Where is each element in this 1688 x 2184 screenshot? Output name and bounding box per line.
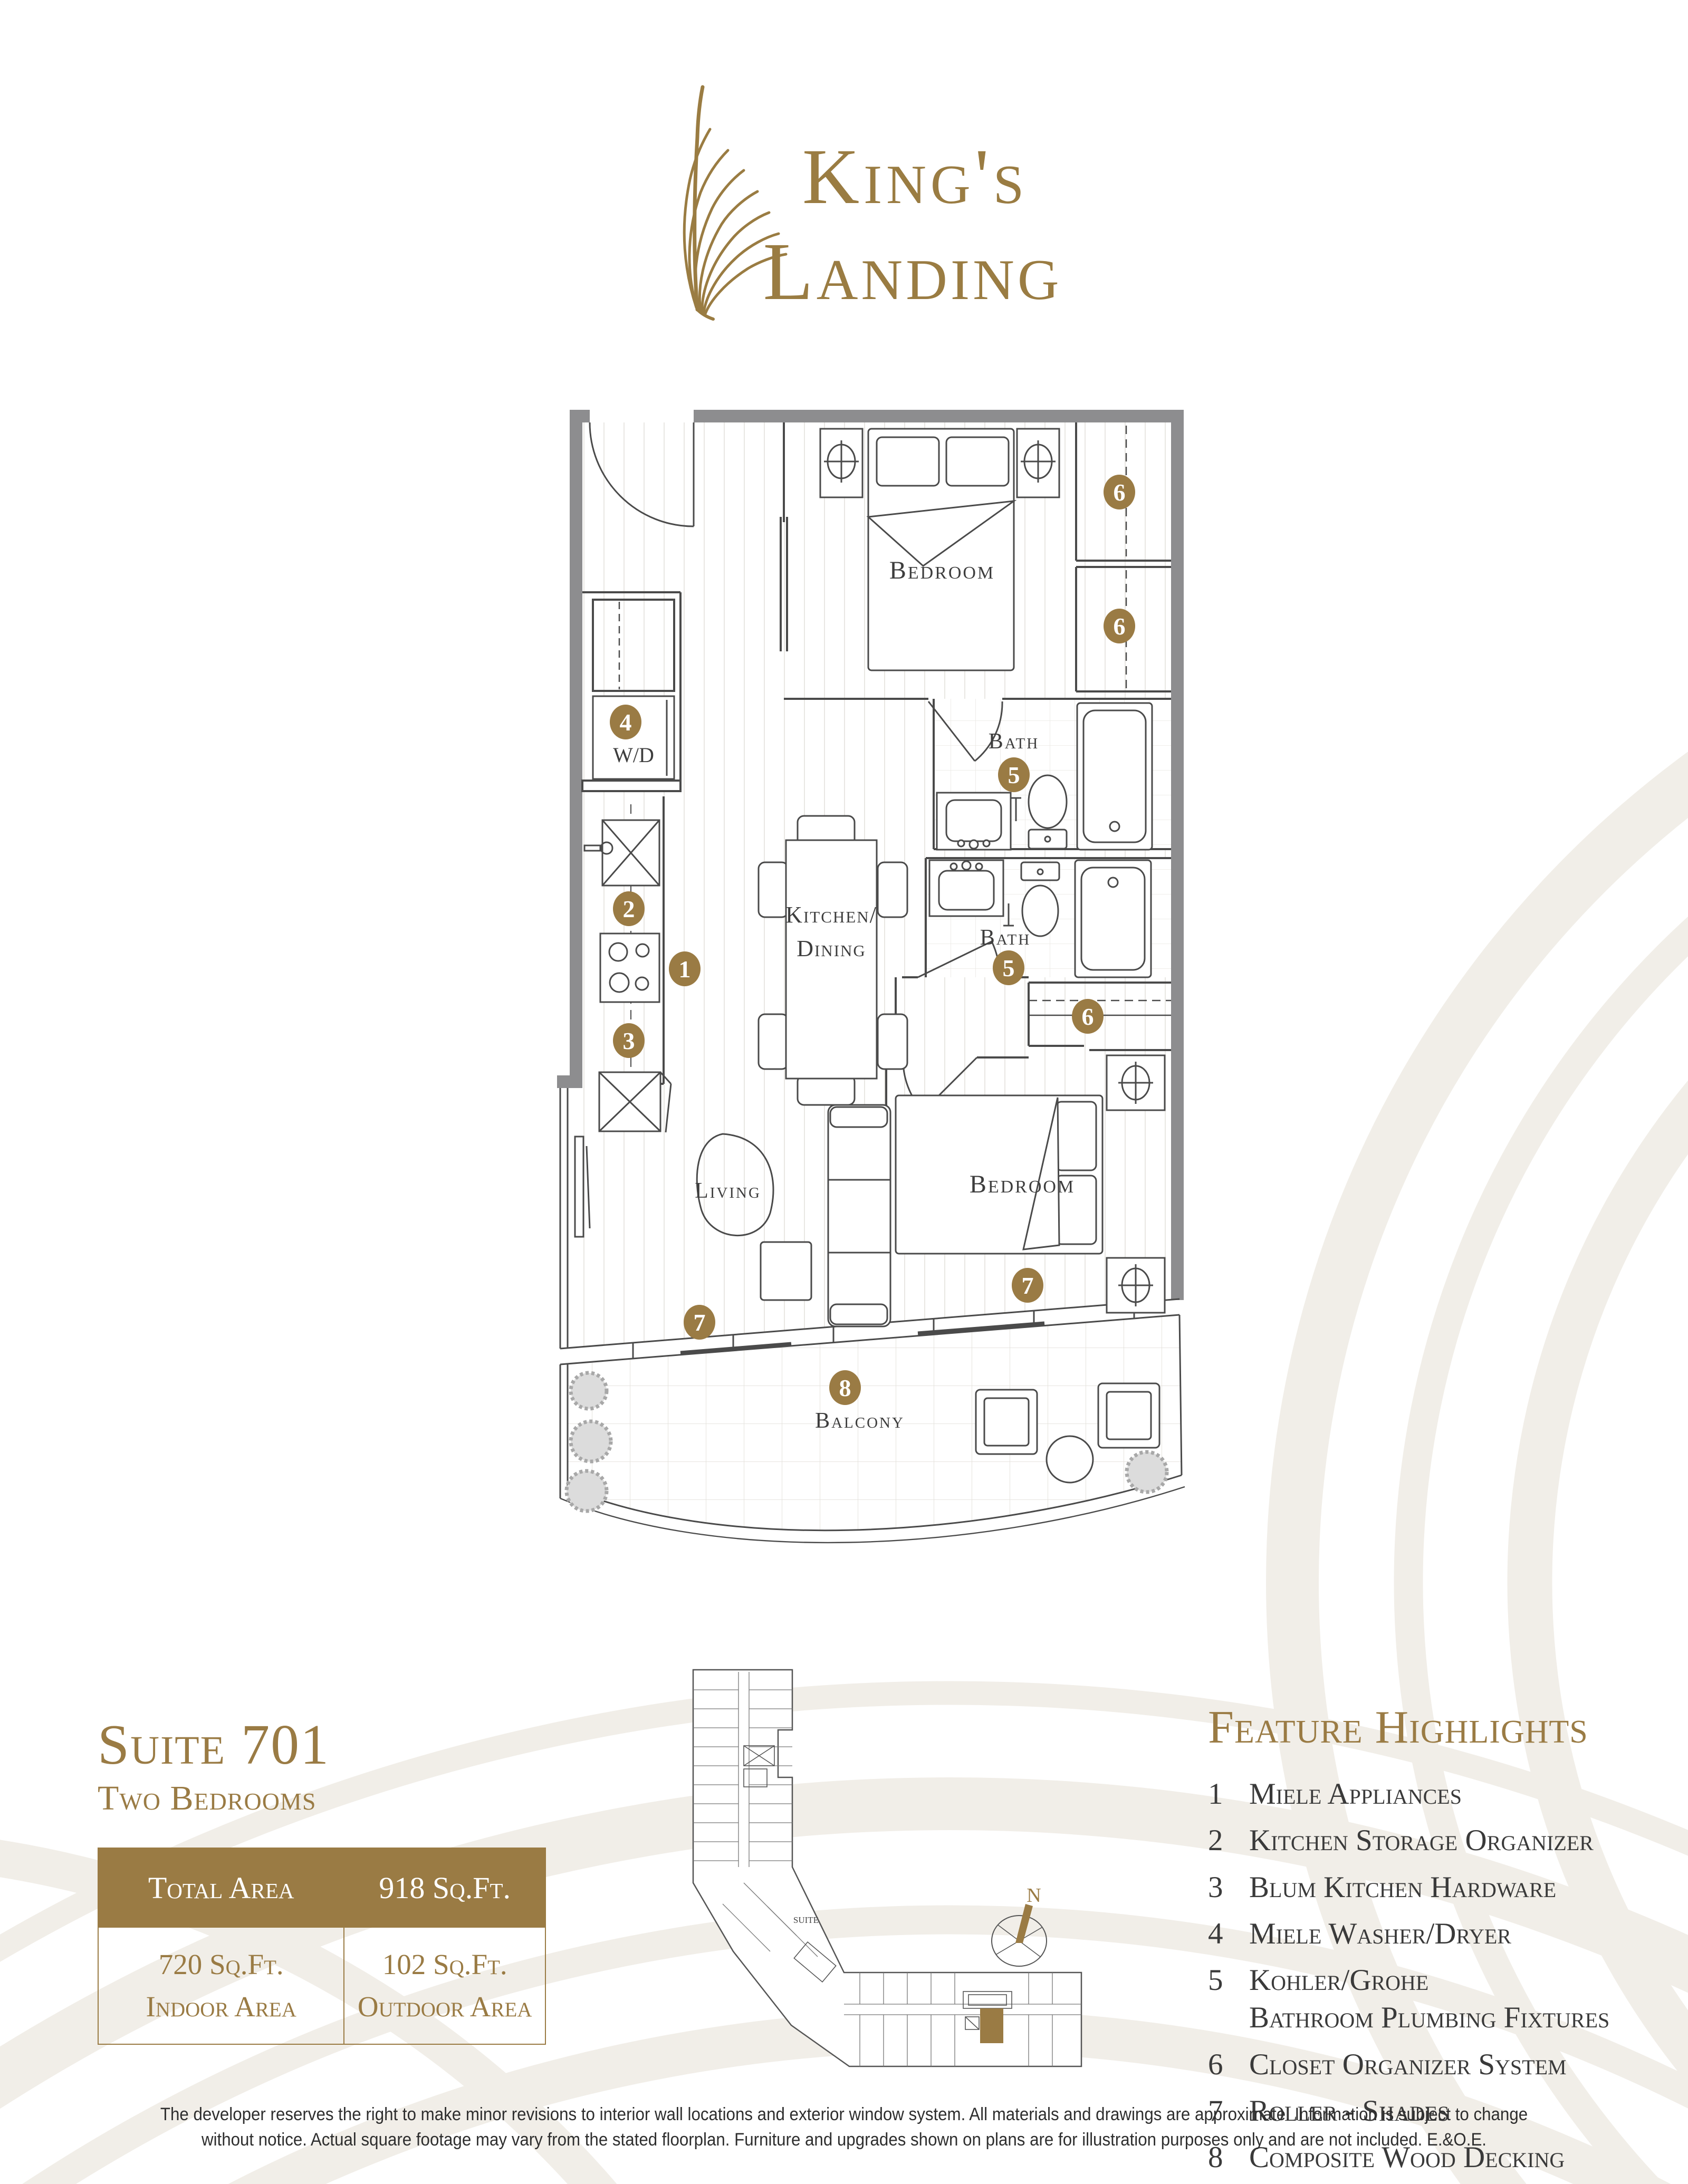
feature-item: 4 Miele Washer/Dryer	[1208, 1915, 1683, 1952]
svg-text:2: 2	[623, 896, 635, 922]
label-bedroom1: Bedroom	[889, 556, 995, 584]
bed-1	[868, 429, 1014, 670]
area-table-header: Total Area 918 Sq.Ft.	[98, 1848, 545, 1927]
disclaimer: The developer reserves the right to make…	[68, 2102, 1620, 2153]
feature-item: 6 Closet Organizer System	[1208, 2046, 1683, 2083]
area-table-body: 720 Sq.Ft. Indoor Area 102 Sq.Ft. Outdoo…	[98, 1927, 545, 2044]
feature-num: 6	[1208, 2046, 1249, 2083]
svg-text:5: 5	[1008, 762, 1020, 788]
disclaimer-line1: The developer reserves the right to make…	[68, 2102, 1620, 2127]
bathtub-1	[1077, 703, 1152, 850]
nightstand-1a	[820, 429, 862, 497]
nightstand-2a	[1107, 1055, 1165, 1110]
feature-label: Kohler/Grohe Bathroom Plumbing Fixtures	[1249, 1961, 1609, 2037]
keyplan-suite-highlight	[980, 2008, 1003, 2043]
suite-info: Suite 701 Two Bedrooms Total Area 918 Sq…	[98, 1717, 572, 2045]
logo-word-kings: King's	[802, 133, 1028, 220]
indoor-area-value: 720 Sq.Ft.	[159, 1948, 284, 1980]
toilet-1	[1029, 775, 1067, 849]
outdoor-area-label: Outdoor Area	[358, 1990, 532, 2023]
floor-plan: Bedroom Bath Kitchen/ Dining Bath Living…	[554, 398, 1208, 1558]
total-area-label: Total Area	[98, 1848, 344, 1927]
marker-4: 4	[610, 705, 641, 739]
marker-8: 8	[829, 1370, 861, 1405]
svg-text:7: 7	[694, 1309, 706, 1336]
feature-label: Miele Appliances	[1249, 1775, 1462, 1813]
nightstand-2b	[1107, 1258, 1165, 1313]
marker-5a: 5	[998, 757, 1030, 792]
floorplan-page: King's Landing	[0, 0, 1688, 2184]
keyplan-outline	[693, 1670, 1081, 2066]
base-cabinet	[599, 1072, 671, 1132]
feature-label: Kitchen Storage Organizer	[1249, 1822, 1594, 1859]
sofa	[828, 1105, 890, 1326]
logo-word-landing: Landing	[763, 226, 1062, 317]
feature-label: Miele Washer/Dryer	[1249, 1915, 1511, 1952]
feature-highlights-title: Feature Highlights	[1208, 1705, 1683, 1751]
total-area-value: 918 Sq.Ft.	[344, 1848, 545, 1927]
feature-num: 2	[1208, 1822, 1249, 1859]
indoor-area-label: Indoor Area	[146, 1990, 296, 2023]
disclaimer-line2: without notice. Actual square footage ma…	[68, 2127, 1620, 2152]
svg-text:5: 5	[1003, 955, 1015, 982]
svg-text:8: 8	[839, 1374, 851, 1401]
coffee-table	[761, 1242, 811, 1300]
toilet-2	[1021, 862, 1059, 936]
feature-item: 1 Miele Appliances	[1208, 1775, 1683, 1813]
svg-text:7: 7	[1022, 1272, 1034, 1299]
keyplan-suite-label: SUITE	[793, 1915, 819, 1925]
label-living: Living	[695, 1179, 761, 1203]
marker-7a: 7	[684, 1305, 715, 1340]
suite-subtitle: Two Bedrooms	[98, 1781, 572, 1816]
label-wd: W/D	[613, 743, 654, 767]
marker-5b: 5	[993, 950, 1024, 985]
svg-text:6: 6	[1114, 479, 1126, 506]
outdoor-area-cell: 102 Sq.Ft. Outdoor Area	[344, 1927, 545, 2044]
svg-text:4: 4	[620, 709, 632, 736]
label-bath2: Bath	[980, 926, 1031, 950]
label-kitchen-line2: Dining	[797, 936, 866, 961]
feature-item: 2 Kitchen Storage Organizer	[1208, 1822, 1683, 1859]
vanity-sink-1	[937, 793, 1021, 850]
marker-6b: 6	[1104, 609, 1135, 643]
svg-text:3: 3	[623, 1027, 635, 1054]
feature-num: 5	[1208, 1961, 1249, 1999]
compass-n-label: N	[1027, 1884, 1041, 1907]
feature-label: Closet Organizer System	[1249, 2046, 1567, 2083]
svg-text:6: 6	[1114, 613, 1126, 640]
marker-6a: 6	[1104, 475, 1135, 509]
marker-7b: 7	[1012, 1268, 1043, 1303]
label-bath1: Bath	[989, 729, 1039, 754]
indoor-area-cell: 720 Sq.Ft. Indoor Area	[98, 1927, 344, 2044]
feature-label: Blum Kitchen Hardware	[1249, 1869, 1556, 1906]
outdoor-area-value: 102 Sq.Ft.	[382, 1948, 507, 1980]
label-bedroom2: Bedroom	[970, 1170, 1075, 1198]
feature-item: 5 Kohler/Grohe Bathroom Plumbing Fixture…	[1208, 1961, 1683, 2037]
feature-item: 3 Blum Kitchen Hardware	[1208, 1869, 1683, 1906]
marker-1: 1	[669, 951, 701, 986]
marker-2: 2	[613, 891, 645, 926]
bathtub-2	[1075, 860, 1151, 977]
marker-3: 3	[613, 1023, 645, 1058]
cooktop	[600, 934, 659, 1002]
label-kitchen-line1: Kitchen/	[785, 902, 877, 928]
vanity-sink-2	[929, 860, 1014, 926]
compass-icon: N	[992, 1884, 1047, 1966]
svg-text:6: 6	[1082, 1003, 1094, 1030]
svg-text:1: 1	[679, 956, 691, 983]
kings-landing-logo: King's Landing	[617, 50, 1081, 324]
marker-6c: 6	[1072, 999, 1104, 1034]
feature-num: 4	[1208, 1915, 1249, 1952]
label-balcony: Balcony	[815, 1409, 905, 1433]
nightstand-1b	[1017, 429, 1059, 497]
suite-title: Suite 701	[98, 1717, 572, 1774]
feature-num: 1	[1208, 1775, 1249, 1813]
area-table: Total Area 918 Sq.Ft. 720 Sq.Ft. Indoor …	[98, 1848, 546, 2045]
building-keyplan: SUITE N	[670, 1656, 1092, 2089]
feature-num: 3	[1208, 1869, 1249, 1906]
